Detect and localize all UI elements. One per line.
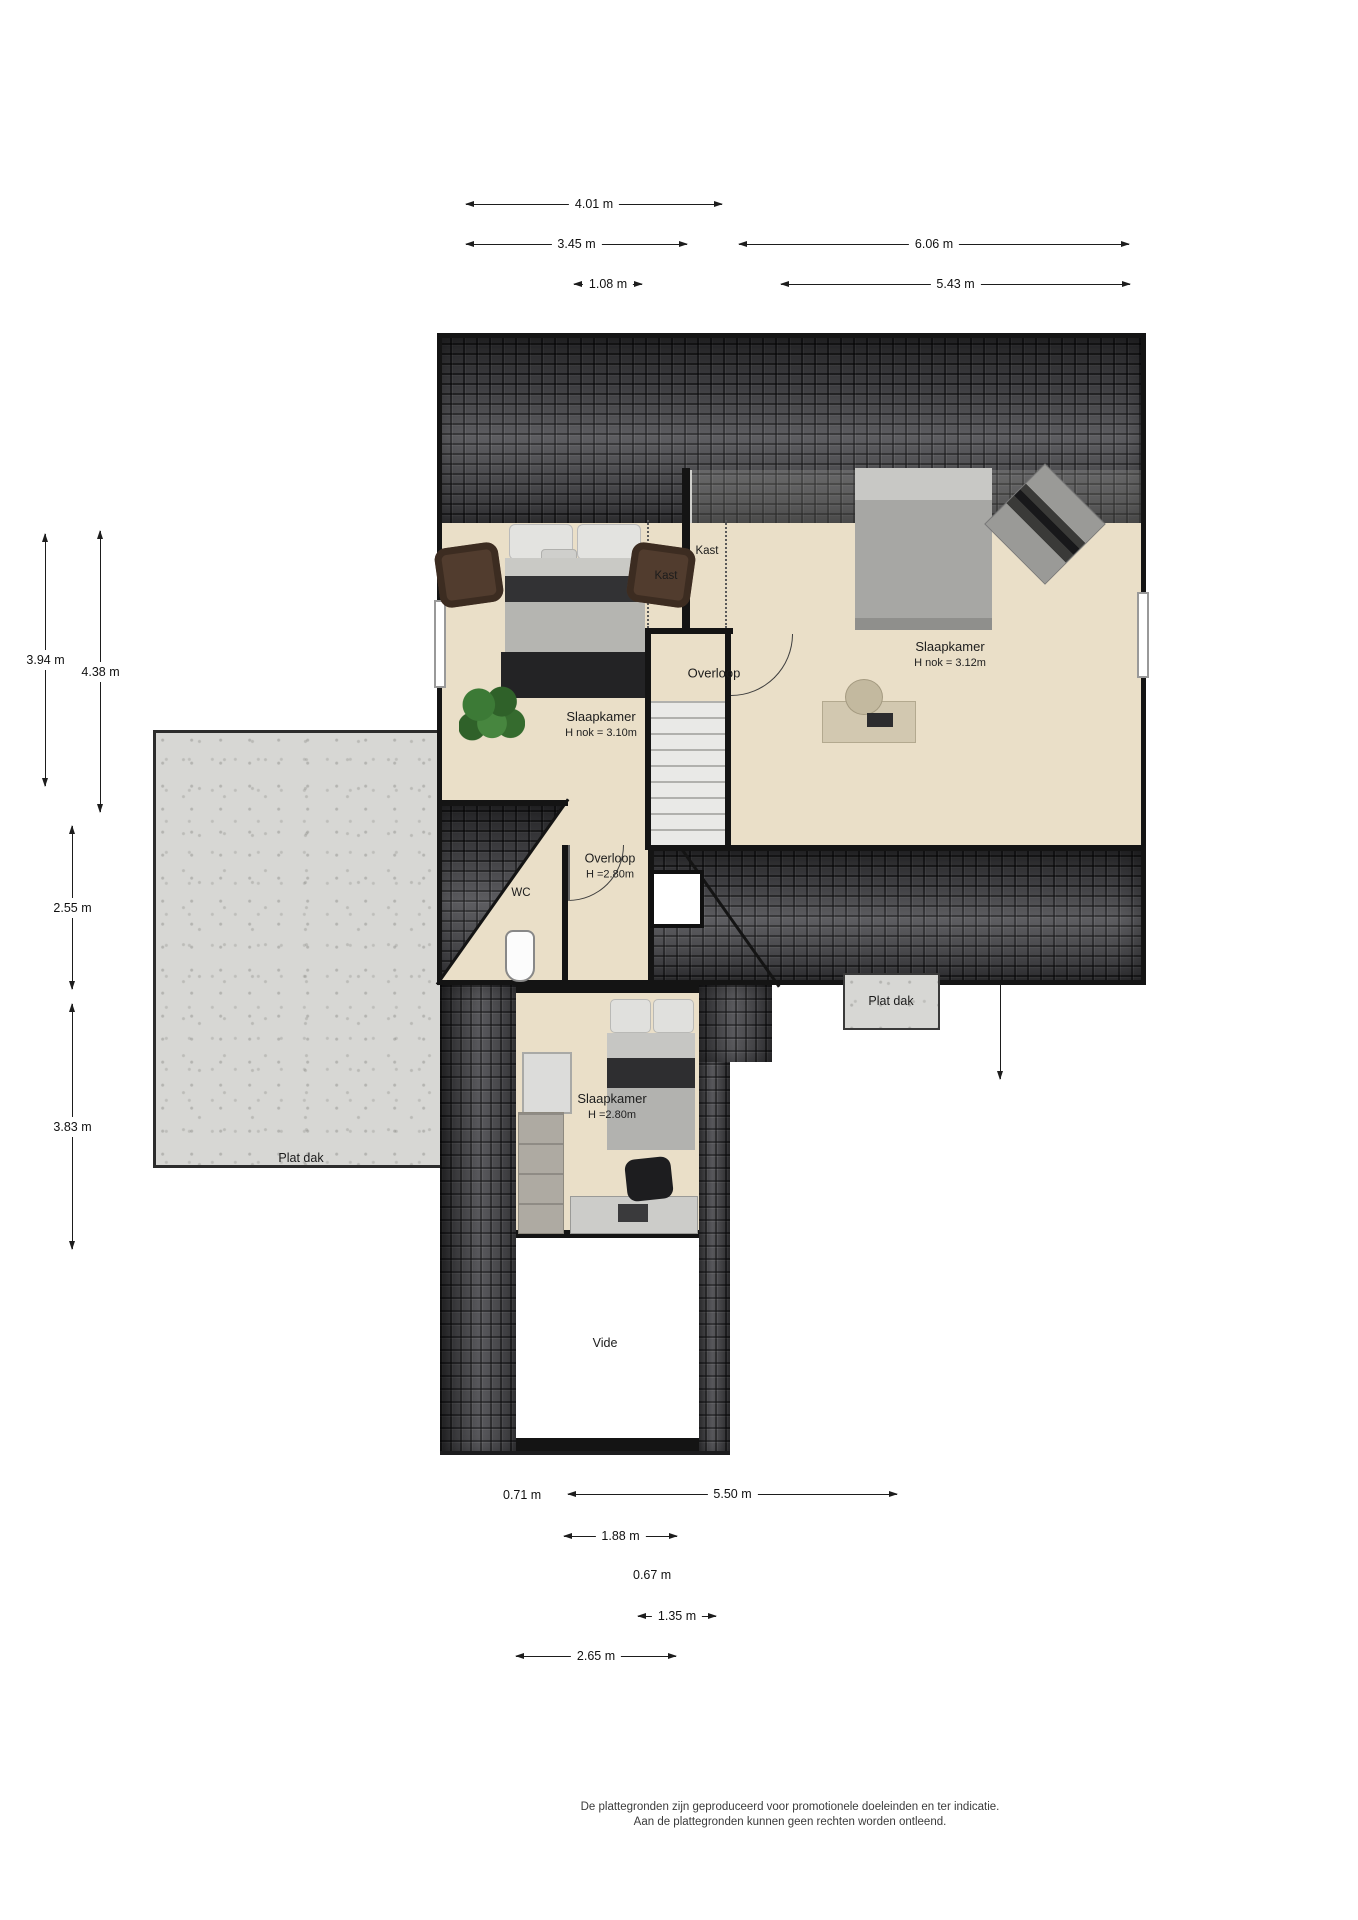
bedroom-right-south-wall [648, 845, 1141, 851]
dim-label: 5.50 m [707, 1486, 757, 1502]
double-bed-foot [855, 618, 992, 630]
dim-bottom-0-67: 0.67 m [633, 1568, 671, 1582]
dim-top-4-01: 4.01 m [465, 198, 723, 211]
disclaimer-line-2: Aan de plattegronden kunnen geen rechten… [440, 1815, 1140, 1830]
room-name: WC [511, 887, 530, 899]
dim-bottom-1-35: 1.35 m [637, 1610, 717, 1623]
dim-left-3-83: 3.83 m [66, 1003, 79, 1250]
chair [845, 679, 883, 715]
dim-label: 3.45 m [551, 236, 601, 252]
room-name: Slaapkamer [566, 709, 635, 724]
closet-bottom-wall [645, 628, 733, 634]
room-height: H =2.80m [577, 1109, 646, 1121]
dim-label: 4.38 m [79, 662, 121, 682]
double-bed-dark-band [505, 576, 645, 602]
closet-right-dotted-line [725, 520, 727, 628]
wing-north-wall [516, 985, 699, 993]
double-bed-top [505, 558, 645, 576]
single-bed-top [607, 1033, 695, 1058]
dim-left-2-55: 2.55 m [66, 825, 79, 990]
room-name: Plat dak [868, 994, 913, 1008]
disclaimer-line-1: De plattegronden zijn geproduceerd voor … [440, 1800, 1140, 1815]
single-bed-pillow [653, 999, 694, 1033]
dim-label: 3.94 m [24, 650, 66, 670]
dim-top-6-06: 6.06 m [738, 238, 1130, 251]
room-height: H =2.80m [585, 869, 636, 881]
wardrobe [518, 1112, 564, 1234]
plant [459, 683, 525, 745]
room-name: Slaapkamer [577, 1091, 646, 1106]
room-name: Overloop [688, 666, 741, 681]
double-bed-body [505, 602, 645, 652]
room-name: Kast [654, 570, 677, 582]
dim-bottom-5-50: 5.50 m [567, 1488, 898, 1501]
bedroom-left-south-wall [437, 800, 568, 806]
window-west [434, 600, 446, 688]
flat-roof-left [153, 730, 457, 1168]
toilet [505, 930, 535, 982]
dim-label: 1.35 m [652, 1608, 702, 1624]
desk-item [867, 713, 893, 727]
room-label-bedroom-right: Slaapkamer H nok = 3.12m [914, 639, 986, 669]
office-chair [624, 1156, 674, 1203]
room-label-vide: Vide [593, 1336, 618, 1350]
room-name: Overloop [585, 852, 636, 866]
dim-label: 1.08 m [583, 276, 633, 292]
main-block [437, 333, 1146, 985]
outer-wall-south [437, 980, 1146, 985]
single-bed-dark-band [607, 1058, 695, 1088]
dim-label: 1.88 m [595, 1528, 645, 1544]
dim-top-3-45: 3.45 m [465, 238, 688, 251]
double-bed-head [855, 468, 992, 500]
vide-south-wall [516, 1438, 699, 1452]
dim-label: 2.55 m [51, 898, 93, 918]
room-height: H nok = 3.10m [565, 727, 637, 739]
room-name: Vide [593, 1336, 618, 1350]
room-name: Plat dak [278, 1151, 323, 1165]
dim-label: 6.06 m [909, 236, 959, 252]
room-label-flat-roof-small: Plat dak [868, 994, 913, 1008]
dim-label: 3.83 m [51, 1117, 93, 1137]
armchair [433, 541, 505, 609]
wall-mirror [522, 1052, 572, 1114]
floorplan-page: 4.01 m 3.45 m 6.06 m 1.08 m 5.43 m 3.94 … [0, 0, 1358, 1920]
room-label-landing-upper: Overloop [688, 666, 741, 681]
dim-bottom-2-65: 2.65 m [515, 1650, 677, 1663]
dim-bottom-0-71: 0.71 m [503, 1488, 541, 1502]
outer-wall-north [437, 333, 1146, 338]
dim-top-1-08: 1.08 m [573, 278, 643, 291]
room-label-closet-right: Kast [695, 545, 718, 557]
wing-eave-line [440, 1451, 730, 1455]
room-label-flat-roof-left: Plat dak [278, 1151, 323, 1165]
room-label-bedroom-left: Slaapkamer H nok = 3.10m [565, 709, 637, 739]
dim-bottom-1-88: 1.88 m [563, 1530, 678, 1543]
room-height: H nok = 3.12m [914, 657, 986, 669]
room-label-wc: WC [511, 887, 530, 899]
dim-left-3-94: 3.94 m [39, 533, 52, 787]
dim-label: 4.01 m [569, 196, 619, 212]
laptop [618, 1204, 648, 1222]
double-bed-body [855, 500, 992, 618]
room-label-bedroom-lower: Slaapkamer H =2.80m [577, 1091, 646, 1121]
dim-left-4-38: 4.38 m [94, 530, 107, 813]
dim-label: 5.43 m [930, 276, 980, 292]
wing-roof-west [440, 985, 520, 1455]
dim-top-5-43: 5.43 m [780, 278, 1131, 291]
stairs [651, 701, 725, 845]
room-name: Slaapkamer [915, 639, 984, 654]
dim-label: 2.65 m [571, 1648, 621, 1664]
dormer-window [650, 870, 704, 928]
room-label-landing-mid: Overloop H =2.80m [585, 852, 636, 881]
room-label-closet-left: Kast [654, 570, 677, 582]
disclaimer: De plattegronden zijn geproduceerd voor … [440, 1800, 1140, 1830]
single-bed-pillow [610, 999, 651, 1033]
wing-roof-corner [695, 985, 772, 1062]
room-name: Kast [695, 545, 718, 557]
window-east [1137, 592, 1149, 678]
